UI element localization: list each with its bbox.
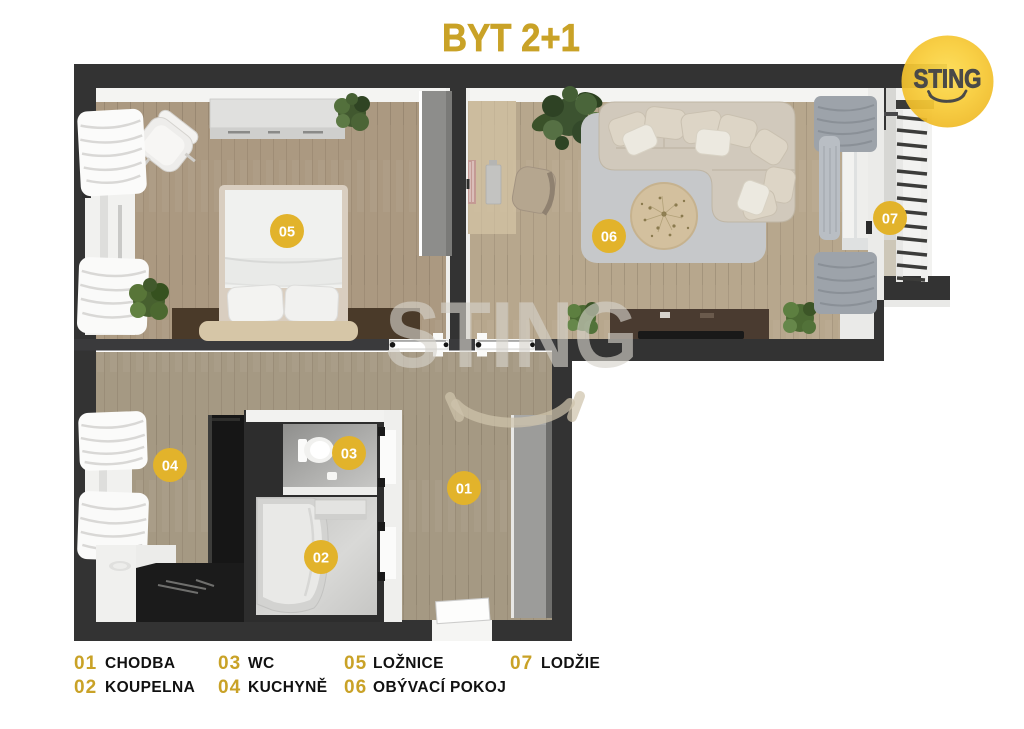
svg-text:05: 05 <box>344 653 367 674</box>
svg-text:STING: STING <box>385 282 638 387</box>
svg-text:07: 07 <box>882 212 898 228</box>
svg-text:05: 05 <box>279 225 295 241</box>
svg-text:BYT 2+1: BYT 2+1 <box>442 17 580 60</box>
svg-text:01: 01 <box>74 653 97 674</box>
svg-text:07: 07 <box>510 653 533 674</box>
svg-text:02: 02 <box>74 677 97 698</box>
svg-text:KUCHYNĚ: KUCHYNĚ <box>248 678 327 696</box>
svg-text:04: 04 <box>218 677 241 698</box>
svg-text:03: 03 <box>341 447 357 463</box>
svg-text:KOUPELNA: KOUPELNA <box>105 679 195 696</box>
svg-text:04: 04 <box>162 459 178 475</box>
svg-text:LOŽNICE: LOŽNICE <box>373 654 444 672</box>
svg-text:WC: WC <box>248 655 275 672</box>
svg-text:02: 02 <box>313 551 329 567</box>
svg-text:01: 01 <box>456 482 472 498</box>
svg-text:STING: STING <box>914 64 982 94</box>
svg-text:LODŽIE: LODŽIE <box>541 654 600 672</box>
svg-text:CHODBA: CHODBA <box>105 655 175 672</box>
svg-text:06: 06 <box>601 230 617 246</box>
svg-text:06: 06 <box>344 677 367 698</box>
svg-text:03: 03 <box>218 653 241 674</box>
svg-text:OBÝVACÍ POKOJ: OBÝVACÍ POKOJ <box>373 678 506 696</box>
